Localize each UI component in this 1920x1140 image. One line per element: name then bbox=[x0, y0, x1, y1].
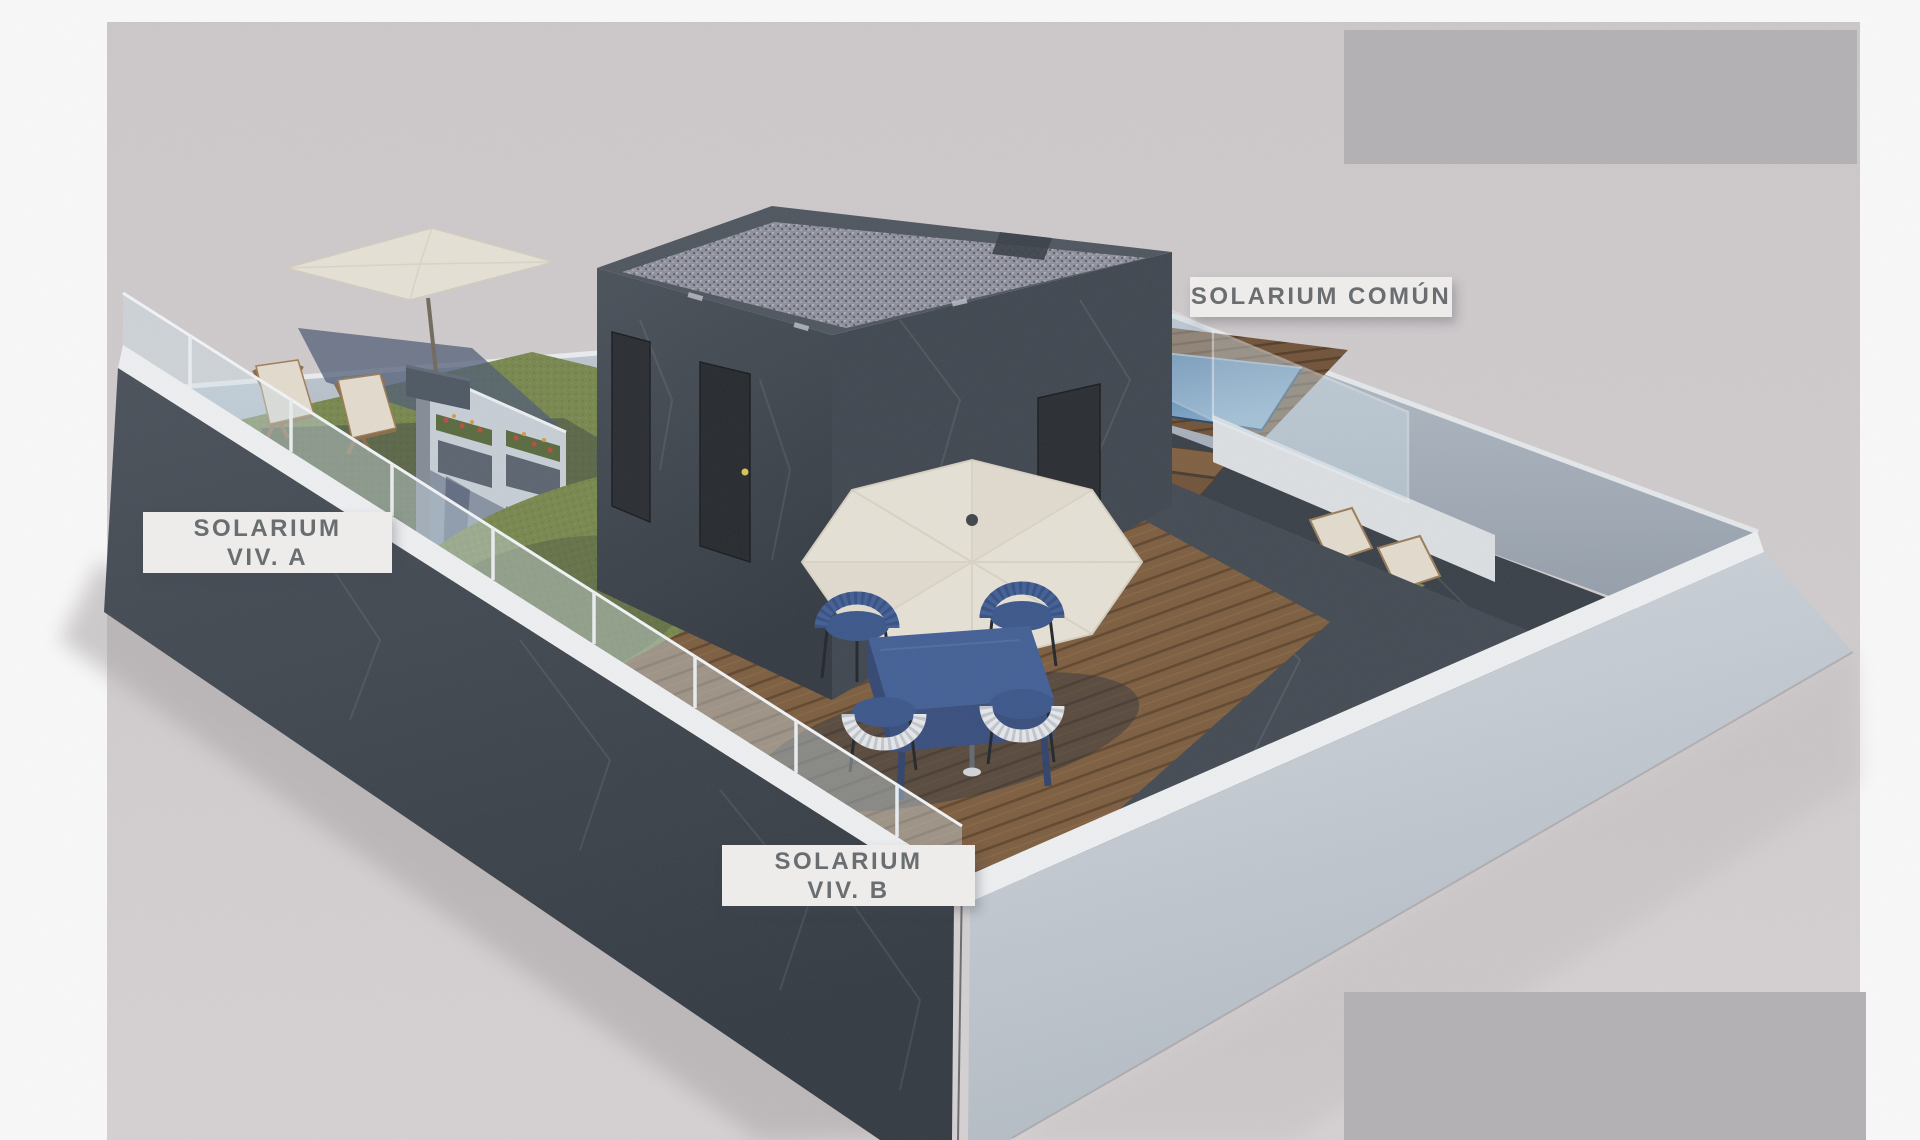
label-solarium-viv-b: SOLARIUM VIV. B bbox=[722, 845, 975, 906]
label-viv-b-line2: VIV. B bbox=[807, 876, 889, 905]
label-solarium-comun: SOLARIUM COMÚN bbox=[1190, 277, 1452, 317]
logo-placeholder-top-right bbox=[1344, 30, 1857, 164]
logo-placeholder-bottom-right bbox=[1344, 992, 1866, 1140]
label-solarium-comun-text: SOLARIUM COMÚN bbox=[1191, 283, 1451, 311]
label-viv-b-line1: SOLARIUM bbox=[775, 847, 923, 876]
real-estate-render-page: SOLARIUM COMÚN SOLARIUM VIV. A SOLARIUM … bbox=[0, 0, 1920, 1140]
grain-overlay bbox=[107, 22, 1860, 1140]
label-viv-a-line1: SOLARIUM bbox=[194, 514, 342, 543]
label-viv-a-line2: VIV. A bbox=[227, 543, 308, 572]
label-solarium-viv-a: SOLARIUM VIV. A bbox=[143, 512, 392, 573]
